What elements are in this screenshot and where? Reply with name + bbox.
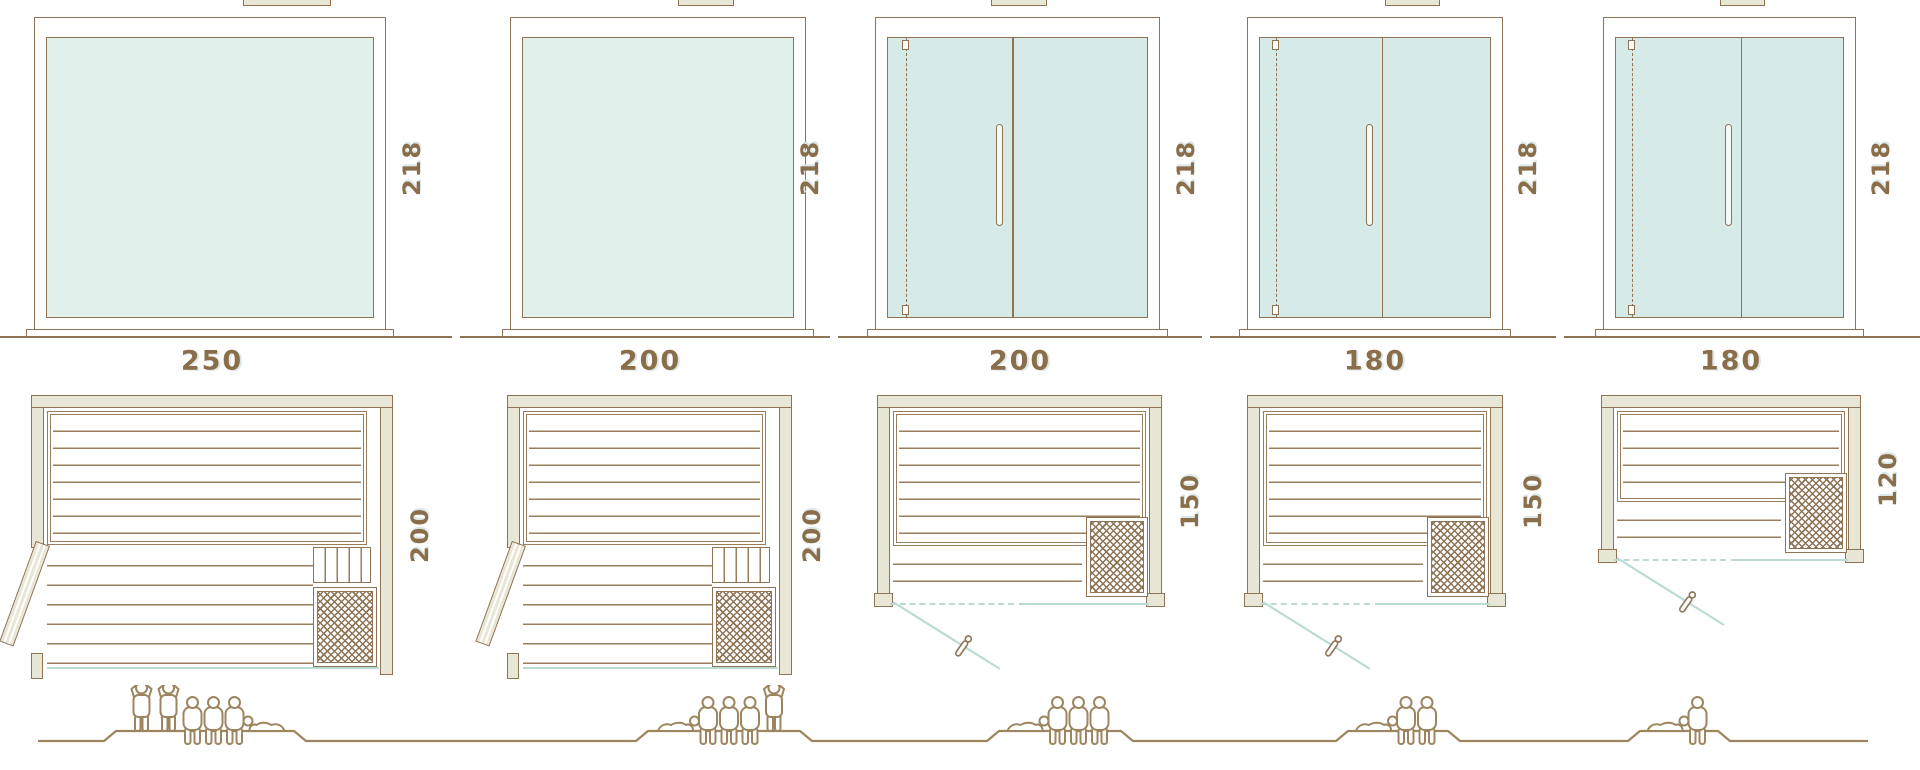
capacity-group-sauna-250x200: [132, 685, 285, 744]
door-pivot-bottom-icon: [1628, 305, 1635, 315]
glass-panel: [1259, 37, 1491, 318]
person-sitting-icon: [1418, 697, 1436, 744]
plan-wall-left: [507, 395, 520, 548]
bench-vertical-slats: [313, 547, 371, 583]
door-hinge-dashed-line: [1276, 38, 1277, 317]
door-jamb-post: [31, 653, 43, 679]
floor-board-slats: [47, 547, 313, 666]
heater: [1427, 517, 1489, 597]
capacity-group-sauna-180x150: [1356, 697, 1436, 744]
person-sitting-icon: [184, 697, 202, 744]
door-leaf-open: [0, 541, 50, 647]
heater-grille: [1431, 521, 1485, 593]
capacity-group-sauna-200x200: [658, 685, 784, 744]
heater: [712, 587, 776, 667]
plan-wall-right: [1490, 395, 1503, 605]
door-pivot-top-icon: [1272, 40, 1279, 50]
person-standing-icon: [132, 685, 152, 731]
person-lying-icon: [658, 717, 699, 732]
door-swing: [1253, 601, 1383, 681]
glass-panel: [887, 37, 1148, 318]
plan-wall-right: [779, 395, 792, 675]
dimension-depth-label: 150: [1519, 473, 1547, 529]
elevation-sill: [1239, 329, 1511, 337]
dimension-width-label: 180: [1344, 346, 1406, 377]
heater-grille: [716, 591, 772, 663]
person-sitting-icon: [699, 697, 717, 744]
dimension-height-label: 218: [796, 140, 824, 196]
elevation-front-view: [34, 17, 386, 331]
person-sitting-icon: [1091, 697, 1109, 744]
bench-upper-slats: [529, 415, 760, 541]
dimension-depth-label: 200: [406, 507, 434, 563]
glass-panel: [46, 37, 374, 318]
door-swing: [1607, 557, 1737, 637]
door-pivot-bottom-icon: [902, 305, 909, 315]
capacity-group-sauna-200x150: [1008, 697, 1109, 744]
person-sitting-icon: [1397, 697, 1415, 744]
person-lying-icon: [1356, 717, 1397, 732]
glass-panel: [522, 37, 794, 318]
door-handle: [1366, 124, 1373, 226]
person-sitting-icon: [741, 697, 759, 744]
heater: [1086, 517, 1148, 597]
capacity-group-sauna-180x120: [1648, 697, 1707, 744]
person-standing-icon: [159, 685, 179, 731]
roof-tab: [1720, 0, 1765, 6]
dimension-width-label: 200: [619, 346, 681, 377]
door-handle-icon: [1678, 591, 1696, 613]
plan-wall-left: [1247, 395, 1260, 605]
plan-wall-back: [877, 395, 1162, 408]
dimension-height-label: 218: [1172, 140, 1200, 196]
bench-lower-slats: [1617, 504, 1781, 553]
dimension-width-label: 200: [989, 346, 1051, 377]
capacity-ground-strip: .pf{fill:#fff;stroke:#9d8560;stroke-widt…: [0, 685, 1920, 770]
dimension-depth-label: 150: [1176, 473, 1204, 529]
plan-wall-back: [31, 395, 393, 408]
elevation-front-view: [510, 17, 806, 331]
glass-front-line: [1375, 603, 1490, 605]
elevation-front-view: [875, 17, 1160, 331]
bench-lower-slats: [893, 548, 1082, 597]
elevation-sill: [1595, 329, 1864, 337]
roof-tab: [991, 0, 1047, 6]
bench-lower-slats: [1263, 548, 1423, 597]
floor-plan-view: [1247, 395, 1503, 607]
elevation-sill: [502, 329, 814, 337]
ground-profile-line: [38, 731, 1868, 741]
floor-plan-view: [877, 395, 1162, 607]
plan-wall-left: [877, 395, 890, 605]
elevation-front-view: [1603, 17, 1856, 331]
person-sitting-icon: [226, 697, 244, 744]
floor-plan-view: [1601, 395, 1861, 563]
roof-tab: [1385, 0, 1440, 6]
person-lying-icon: [1648, 717, 1689, 732]
person-sitting-icon: [1070, 697, 1088, 744]
plan-wall-right: [1149, 395, 1162, 605]
roof-tab: [678, 0, 734, 6]
door-divider-line: [1012, 38, 1014, 317]
glass-front-line: [47, 667, 379, 669]
door-jamb-post: [507, 653, 519, 679]
door-divider-line: [1741, 38, 1743, 317]
dimension-width-label: 180: [1700, 346, 1762, 377]
sauna-models-dimension-diagram: 218250200218200200218200 150218180 15021…: [0, 0, 1920, 770]
glass-front-line: [1731, 559, 1848, 561]
floor-plan-view: [31, 395, 393, 675]
glass-front-line: [1019, 603, 1149, 605]
person-sitting-icon: [1049, 697, 1067, 744]
dimension-height-label: 218: [1867, 140, 1895, 196]
door-divider-line: [1382, 38, 1384, 317]
glass-front-line: [523, 667, 778, 669]
floor-board-slats: [523, 547, 712, 666]
glass-panel: [1615, 37, 1844, 318]
door-swing: [883, 601, 1013, 681]
door-swing-icon: [1607, 557, 1737, 637]
heater: [313, 587, 377, 667]
door-leaf-open: [475, 541, 526, 647]
plan-wall-left: [1601, 395, 1614, 561]
door-pivot-bottom-icon: [1272, 305, 1279, 315]
door-hinge-dashed-line: [1632, 38, 1633, 317]
floor-plan-view: [507, 395, 792, 675]
door-handle: [996, 124, 1003, 226]
plan-wall-right: [1848, 395, 1861, 561]
heater: [1785, 473, 1847, 553]
dimension-width-label: 250: [181, 346, 243, 377]
plan-wall-back: [1247, 395, 1503, 408]
dimension-depth-label: 120: [1874, 451, 1902, 507]
heater-grille: [1090, 521, 1144, 593]
plan-wall-right: [380, 395, 393, 675]
dimension-depth-label: 200: [798, 507, 826, 563]
person-sitting-icon: [205, 697, 223, 744]
door-hinge-dashed-line: [906, 38, 907, 317]
heater-grille: [1789, 477, 1843, 549]
heater-grille: [317, 591, 373, 663]
person-sitting-icon: [720, 697, 738, 744]
elevation-sill: [26, 329, 394, 337]
dimension-height-label: 218: [398, 140, 426, 196]
dimension-height-label: 218: [1514, 140, 1542, 196]
person-sitting-icon: [1689, 697, 1707, 744]
bench-vertical-slats: [712, 547, 770, 583]
plan-wall-back: [507, 395, 792, 408]
bench-upper-slats: [53, 415, 361, 541]
bench-upper: [47, 411, 367, 545]
roof-tab: [243, 0, 331, 6]
door-pivot-top-icon: [902, 40, 909, 50]
door-swing-icon: [1253, 601, 1383, 681]
elevation-sill: [867, 329, 1168, 337]
capacity-strip-icon: .pf{fill:#fff;stroke:#9d8560;stroke-widt…: [0, 685, 1920, 770]
bench-upper: [523, 411, 766, 545]
door-handle-icon: [954, 635, 972, 657]
plan-wall-back: [1601, 395, 1861, 408]
door-swing-icon: [883, 601, 1013, 681]
plan-wall-left: [31, 395, 44, 548]
person-lying-icon: [1008, 717, 1049, 732]
person-standing-icon: [764, 685, 784, 731]
door-pivot-top-icon: [1628, 40, 1635, 50]
person-lying-icon: [244, 717, 285, 732]
door-handle-icon: [1324, 635, 1342, 657]
elevation-front-view: [1247, 17, 1503, 331]
door-handle: [1725, 124, 1732, 226]
